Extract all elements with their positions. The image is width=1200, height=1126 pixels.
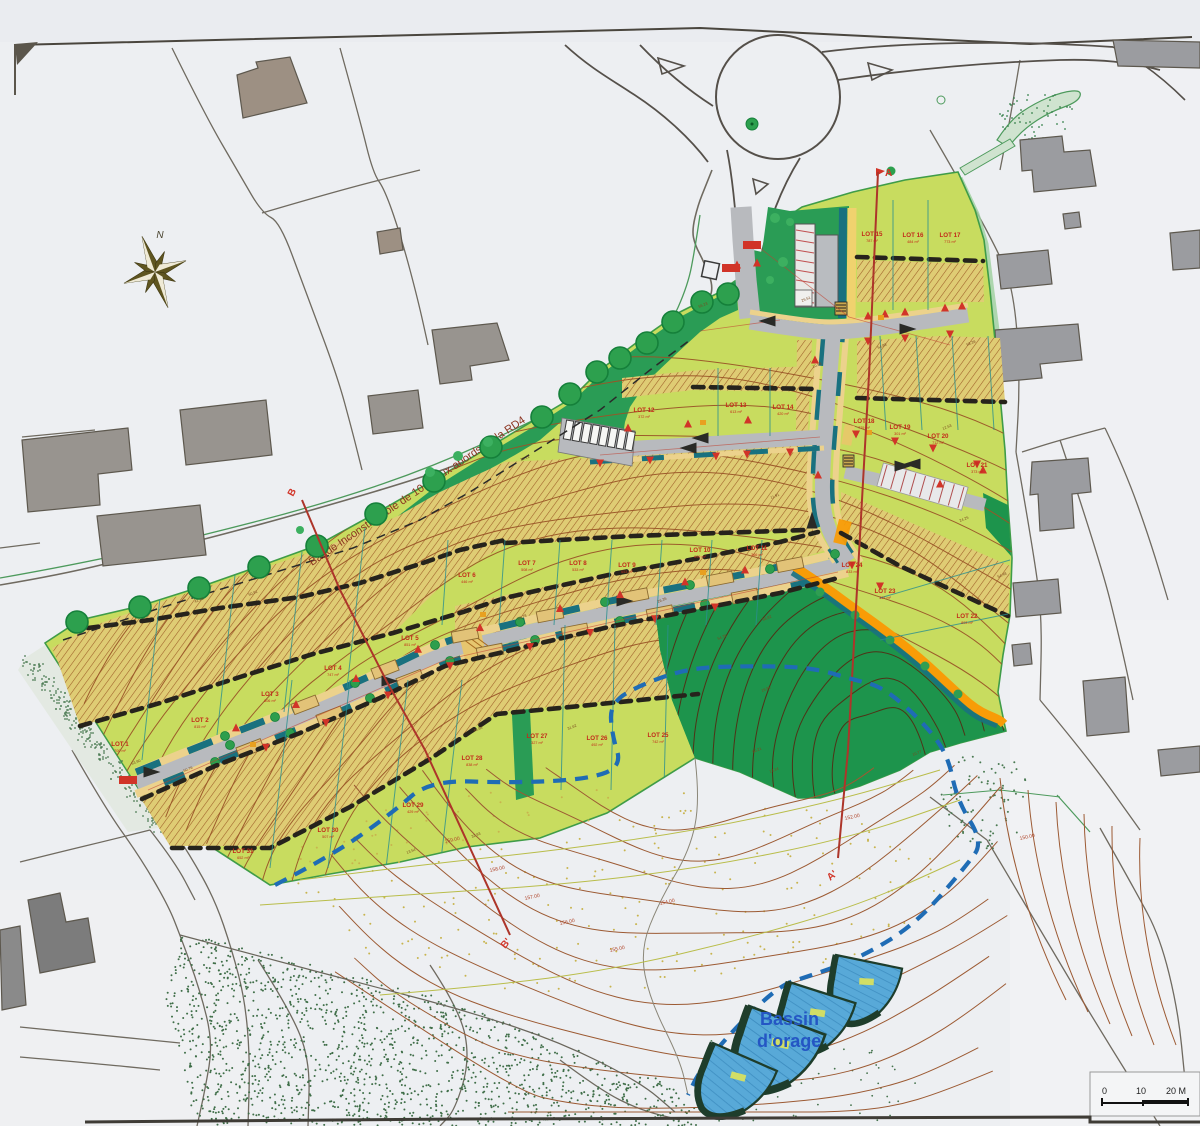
svg-text:LOT 1: LOT 1 [111, 741, 129, 748]
svg-text:LOT 26: LOT 26 [587, 735, 609, 742]
svg-text:LOT 19: LOT 19 [890, 424, 912, 431]
svg-text:LOT 30: LOT 30 [318, 827, 340, 834]
svg-text:893 m²: 893 m² [961, 621, 974, 625]
svg-text:508 m²: 508 m² [521, 568, 534, 572]
svg-text:301 m²: 301 m² [894, 432, 907, 436]
svg-text:N: N [156, 230, 164, 241]
svg-text:851 m²: 851 m² [404, 643, 417, 647]
svg-text:LOT 6: LOT 6 [458, 572, 476, 579]
svg-text:LOT 8: LOT 8 [569, 560, 587, 567]
svg-text:20 M: 20 M [1166, 1086, 1186, 1096]
svg-text:LOT 12: LOT 12 [634, 407, 656, 414]
svg-text:LOT 23: LOT 23 [875, 588, 897, 595]
svg-text:337 m²: 337 m² [879, 596, 892, 600]
svg-text:LOT 17: LOT 17 [940, 232, 962, 239]
svg-text:787 m²: 787 m² [866, 239, 879, 243]
svg-text:LOT 31: LOT 31 [233, 848, 255, 855]
svg-text:0: 0 [1102, 1086, 1107, 1096]
svg-text:533 m²: 533 m² [572, 568, 585, 572]
svg-text:747 m²: 747 m² [327, 673, 340, 677]
svg-text:LOT 22: LOT 22 [957, 613, 979, 620]
svg-text:LOT 4: LOT 4 [324, 665, 342, 672]
svg-text:LOT 9: LOT 9 [618, 562, 636, 569]
svg-text:327 m²: 327 m² [531, 741, 544, 745]
svg-text:LOT 3: LOT 3 [261, 691, 279, 698]
svg-text:838 m²: 838 m² [466, 763, 479, 767]
svg-text:653 m²: 653 m² [621, 570, 634, 574]
svg-text:A: A [885, 168, 892, 179]
svg-text:LOT 7: LOT 7 [518, 560, 536, 567]
svg-text:420 m²: 420 m² [777, 412, 790, 416]
svg-text:LOT 2: LOT 2 [191, 717, 209, 724]
svg-text:492 m²: 492 m² [591, 743, 604, 747]
svg-text:815 m²: 815 m² [194, 725, 207, 729]
svg-text:LOT 5: LOT 5 [401, 635, 419, 642]
svg-text:779 m²: 779 m² [858, 426, 871, 430]
svg-text:LOT 13: LOT 13 [726, 402, 748, 409]
svg-text:LOT 15: LOT 15 [862, 231, 884, 238]
svg-text:806 m²: 806 m² [264, 699, 277, 703]
svg-text:773 m²: 773 m² [944, 240, 957, 244]
svg-text:712 m²: 712 m² [932, 441, 945, 445]
svg-text:700 m²: 700 m² [114, 749, 127, 753]
svg-text:LOT 28: LOT 28 [462, 755, 484, 762]
svg-text:Bassin: Bassin [760, 1009, 819, 1029]
svg-text:LOT 29: LOT 29 [403, 802, 425, 809]
svg-text:639 m²: 639 m² [694, 555, 707, 559]
svg-text:507 m²: 507 m² [322, 835, 335, 839]
svg-text:LOT 16: LOT 16 [903, 232, 925, 239]
svg-text:742 m²: 742 m² [652, 740, 665, 744]
svg-text:LOT 25: LOT 25 [648, 732, 670, 739]
svg-text:d'orage: d'orage [757, 1031, 821, 1051]
svg-text:LOT 20: LOT 20 [928, 433, 950, 440]
svg-text:373 m²: 373 m² [971, 470, 984, 474]
svg-text:429 m²: 429 m² [407, 810, 420, 814]
svg-text:652 m²: 652 m² [237, 856, 250, 860]
svg-text:LOT 11: LOT 11 [747, 545, 768, 552]
svg-text:LOT 24: LOT 24 [842, 562, 864, 569]
svg-text:372 m²: 372 m² [638, 415, 651, 419]
svg-text:LOT 10: LOT 10 [690, 547, 712, 554]
svg-text:366 m²: 366 m² [751, 553, 764, 557]
svg-text:833 m²: 833 m² [846, 570, 859, 574]
svg-text:446 m²: 446 m² [461, 580, 474, 584]
svg-text:LOT 27: LOT 27 [527, 733, 549, 740]
svg-text:LOT 21: LOT 21 [967, 462, 989, 469]
svg-text:484 m²: 484 m² [907, 240, 920, 244]
svg-text:613 m²: 613 m² [730, 410, 743, 414]
svg-text:LOT 14: LOT 14 [773, 404, 795, 411]
svg-text:LOT 18: LOT 18 [854, 418, 876, 425]
svg-text:10: 10 [1136, 1086, 1146, 1096]
